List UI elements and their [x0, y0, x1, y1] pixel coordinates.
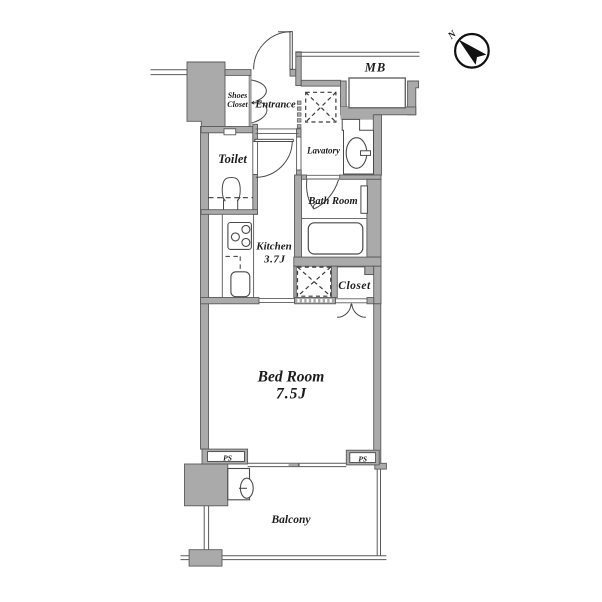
svg-text:Kitchen: Kitchen [255, 241, 291, 253]
svg-text:Closet: Closet [227, 100, 248, 109]
svg-text:3.7J: 3.7J [263, 254, 286, 266]
svg-text:Closet: Closet [338, 280, 371, 292]
svg-text:MB: MB [364, 61, 386, 75]
svg-text:Bath Room: Bath Room [307, 196, 357, 207]
svg-text:Lavatory: Lavatory [306, 146, 341, 156]
svg-text:Shoes: Shoes [228, 91, 248, 100]
svg-text:Toilet: Toilet [218, 152, 247, 166]
svg-text:PS: PS [223, 454, 232, 463]
svg-text:PS: PS [358, 455, 367, 464]
svg-text:Balcony: Balcony [271, 514, 312, 526]
svg-text:7.5J: 7.5J [276, 386, 307, 403]
svg-text:Bed Room: Bed Room [257, 369, 325, 386]
svg-text:Entrance: Entrance [254, 100, 296, 111]
